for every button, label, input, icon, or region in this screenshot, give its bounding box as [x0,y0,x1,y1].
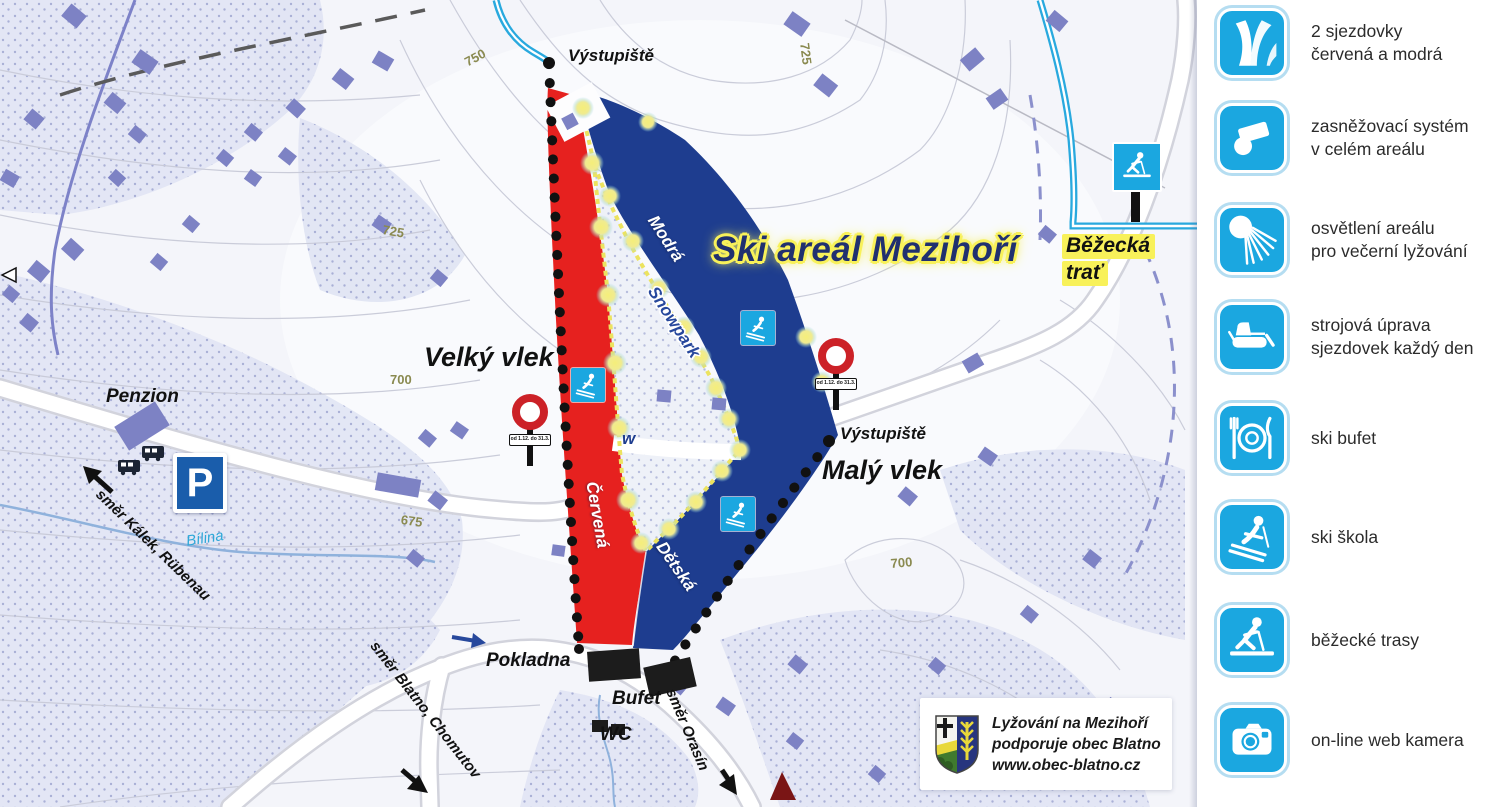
skier-icon [744,314,772,342]
map-canvas: w [0,0,1197,807]
velky-vlek-label: Velký vlek [424,342,554,373]
wc-label: WC [600,724,632,746]
sponsor-line2: podporuje obec Blatno [992,734,1161,755]
floodlight-icon [1217,205,1287,275]
map-edge-shadow [1189,0,1197,807]
sign-plate: od 1.12. do 31.3. [815,378,857,390]
legend-text: ski bufet [1311,427,1376,450]
legend-text: osvětlení areálupro večerní lyžování [1311,217,1468,263]
legend-item-snowmaking: zasněžovací systémv celém areálu [1217,103,1469,173]
map-artwork: w [0,0,1197,807]
contour-label-675: 675 [400,512,424,530]
bezecka-trat-line1: Běžecká [1062,234,1155,259]
contour-label-725-top: 725 [797,42,815,65]
sponsor-box: Lyžování na Mezihoří podporuje obec Blat… [920,698,1172,790]
legend-item-pistes: 2 sjezdovkyčervená a modrá [1217,8,1442,78]
legend-text: on-line web kamera [1311,729,1464,752]
legend-text: 2 sjezdovkyčervená a modrá [1311,20,1442,66]
legend-item-buffet: ski bufet [1217,403,1376,473]
pokladna-label: Pokladna [486,650,570,672]
skier-icon [724,500,752,528]
cross-country-sign [1112,142,1162,192]
legend-text: strojová úpravasjezdovek každý den [1311,314,1473,360]
ski-school-marker[interactable] [571,368,605,402]
contour-label-700: 700 [390,372,412,387]
legend-text: zasněžovací systémv celém areálu [1311,115,1469,161]
sign-plate: od 1.12. do 31.3. [509,434,551,446]
bridge-icon: w [622,429,637,448]
skier-icon [574,371,602,399]
no-entry-icon [512,394,548,430]
map-title: Ski areál Mezihoří [713,230,1018,270]
lift-top-station-label: Výstupiště [568,46,654,66]
bezecka-trat-label: Běžecká trať [1062,234,1155,286]
ski-buffet-icon [1217,403,1287,473]
legend-item-grooming: strojová úpravasjezdovek každý den [1217,302,1473,372]
sponsor-line3[interactable]: www.obec-blatno.cz [992,755,1161,776]
piste-icon [1217,8,1287,78]
bufet-label: Bufet [612,688,661,710]
legend-item-cross-country: běžecké trasy [1217,605,1419,675]
snow-cannon-icon [1217,103,1287,173]
cross-country-icon [1217,605,1287,675]
ski-area-map-page: w [0,0,1489,807]
ski-school-marker[interactable] [741,311,775,345]
legend-text: ski škola [1311,526,1378,549]
parking-sign[interactable]: P [173,453,227,513]
legend-item-lighting: osvětlení areálupro večerní lyžování [1217,205,1468,275]
maly-vlek-label: Malý vlek [822,455,942,486]
webcam-icon [1217,705,1287,775]
blatno-coat-of-arms [934,714,980,774]
ski-school-icon [1217,502,1287,572]
bezecka-trat-line2: trať [1062,261,1108,286]
no-entry-icon [818,338,854,374]
snow-groomer-icon [1217,302,1287,372]
legend-sidebar: 2 sjezdovkyčervená a modrá zasněžovací s… [1197,0,1489,807]
penzion-label: Penzion [106,386,179,408]
legend-item-webcam: on-line web kamera [1217,705,1464,775]
sign-post [1131,192,1140,222]
cross-country-skier-icon [1120,150,1154,184]
contour-label-700-right: 700 [890,554,913,571]
legend-text: běžecké trasy [1311,629,1419,652]
sponsor-line1: Lyžování na Mezihoří [992,713,1161,734]
maly-vlek-station-label: Výstupiště [840,424,926,444]
ski-school-marker[interactable] [721,497,755,531]
legend-item-ski-school: ski škola [1217,502,1378,572]
